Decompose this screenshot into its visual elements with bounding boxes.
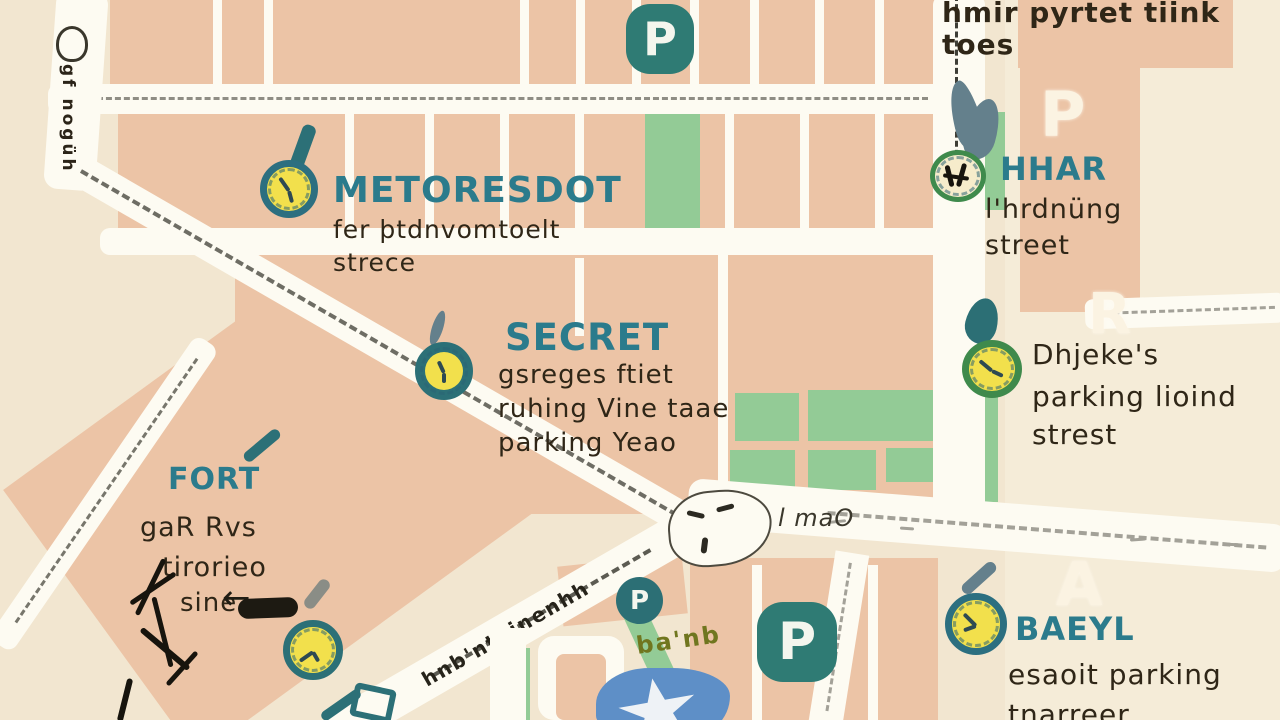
face-eye	[716, 503, 735, 512]
clock-hand	[963, 624, 977, 632]
stall-divider	[875, 112, 884, 234]
secret-title: SECRET	[505, 316, 669, 359]
topright-text-line1: hmir pyrtet tiink	[942, 0, 1220, 29]
stall-divider	[718, 255, 728, 512]
stall-divider	[800, 112, 809, 234]
face-doodle-text: l maO	[778, 504, 854, 532]
parking-marker-bottom[interactable]: P	[757, 602, 837, 682]
metoresdot-sub2: strece	[333, 248, 416, 277]
road-right-vertical	[933, 0, 985, 525]
stall-divider	[264, 0, 273, 86]
clock-face	[425, 352, 463, 390]
park-block	[886, 448, 936, 482]
metoresdot-clock-icon[interactable]	[260, 160, 318, 218]
pencil-doodle	[959, 559, 998, 596]
stall-divider	[750, 0, 759, 86]
parking-letter: P	[778, 612, 816, 672]
secret-sub1: gsreges ftiet	[498, 360, 674, 390]
hhar-people-icon[interactable]	[930, 150, 986, 202]
parking-letter: P	[630, 586, 649, 616]
road-top-horizontal	[48, 84, 943, 114]
figure-stroke	[956, 163, 967, 187]
clock-hand	[287, 190, 294, 203]
stall-divider	[520, 0, 529, 86]
stall-divider	[725, 112, 734, 234]
baeyl-clock-icon[interactable]	[945, 593, 1007, 655]
park-block	[808, 390, 938, 441]
fort-title: FORT	[168, 462, 260, 497]
fort-sub1: gaR Rvs	[140, 512, 257, 543]
clock-hand	[978, 359, 993, 372]
face-mouth	[701, 537, 709, 554]
parking-marker-top[interactable]: P	[626, 4, 694, 74]
illustrated-parking-map: hnb'nteinenhh gf nogüh P R A P P P METOR…	[0, 0, 1280, 720]
park-block	[808, 450, 876, 490]
face-eye	[686, 510, 705, 519]
hhar-title: HHAR	[1000, 150, 1107, 188]
figure-stroke	[944, 165, 954, 188]
secret-sub2: ruhing Vine taae	[498, 394, 729, 424]
scribble-figure-doodle	[108, 548, 218, 720]
scribble-stroke	[117, 678, 133, 720]
figure-stroke	[943, 173, 969, 181]
baeyl-sub1: esaoit parking	[1008, 658, 1222, 691]
stall-divider	[815, 0, 824, 86]
ghost-letter-p: P	[1040, 78, 1085, 151]
clock-hand	[311, 651, 320, 663]
dhjekes-clock-icon[interactable]	[962, 340, 1022, 398]
bottomleft-clock-icon[interactable]	[283, 620, 343, 680]
park-strip-top	[645, 95, 700, 232]
topright-text-line2: toes	[942, 28, 1014, 61]
clock-hand	[299, 650, 314, 662]
marker-bar-doodle	[238, 597, 299, 619]
clock-hand	[278, 177, 290, 192]
parking-letter: P	[643, 12, 677, 66]
street-clock-doodle-icon	[56, 26, 88, 62]
road-dashes	[88, 97, 928, 100]
secret-sub3: parking Yeao	[498, 428, 677, 458]
stall-divider	[213, 0, 222, 86]
clock-hand	[437, 360, 446, 373]
secret-clock-icon[interactable]	[415, 342, 473, 400]
stall-divider	[576, 0, 585, 86]
clock-hand	[991, 369, 1004, 378]
metoresdot-sub1: fer þtdnvomtoelt	[333, 215, 560, 244]
stall-divider	[868, 565, 878, 720]
clock-hand	[963, 613, 978, 628]
hhar-sub2: street	[985, 230, 1070, 261]
baeyl-sub2: tnarreer	[1008, 698, 1130, 720]
clock-hand	[442, 373, 446, 383]
dhjekes-line3: strest	[1032, 418, 1117, 451]
parking-marker-small[interactable]: P	[616, 577, 663, 624]
road-bottom-center-vertical	[490, 628, 526, 720]
hhar-sub1: l'hrdnüng	[985, 194, 1122, 225]
dhjekes-line1: Dhjeke's	[1032, 338, 1159, 371]
street-label-vertical: gf nogüh	[58, 64, 78, 174]
metoresdot-title: METORESDOT	[333, 170, 622, 211]
stall-divider	[875, 0, 884, 86]
baeyl-title: BAEYL	[1015, 610, 1135, 648]
dhjekes-line2: parking lioind	[1032, 380, 1237, 413]
park-block	[735, 393, 799, 441]
